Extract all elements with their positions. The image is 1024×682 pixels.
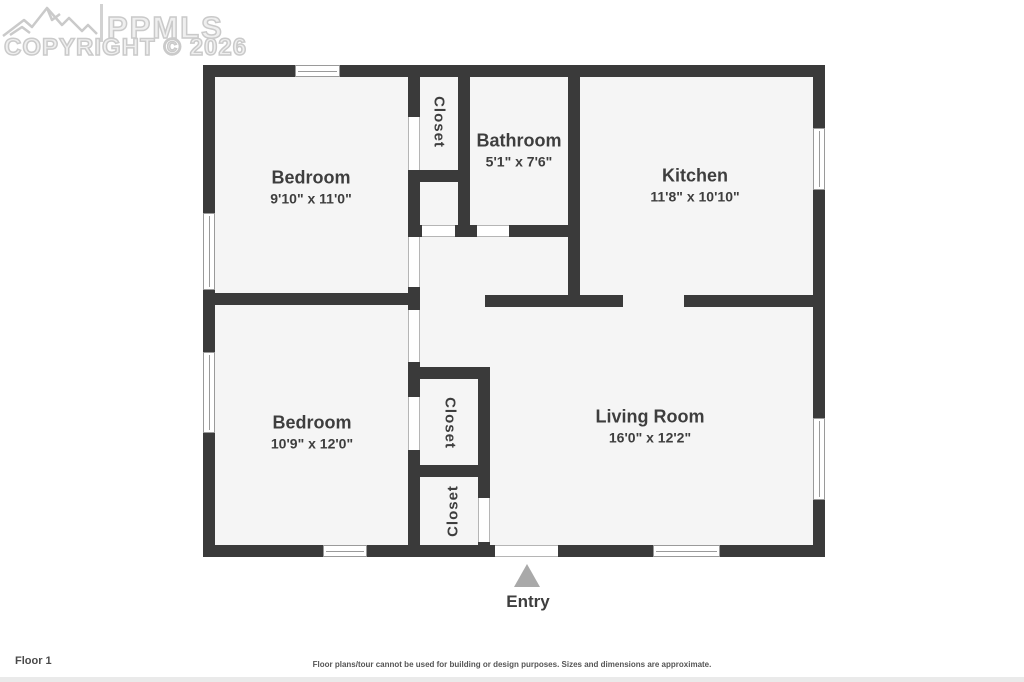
label-bathroom: Bathroom 5'1" x 7'6" <box>477 130 562 169</box>
label-bedroom-1: Bedroom 9'10" x 11'0" <box>270 167 351 206</box>
bottom-edge-strip <box>0 677 1024 682</box>
window-bedroom2-bottom <box>323 545 367 557</box>
door-hall-nook <box>422 225 455 237</box>
room-dimensions: 16'0" x 12'2" <box>596 429 705 446</box>
room-dimensions: 9'10" x 11'0" <box>270 190 351 207</box>
label-closet-middle: Closet <box>442 397 459 449</box>
room-name: Kitchen <box>650 165 739 186</box>
door-bedroom1 <box>408 237 420 287</box>
window-bedroom1-left <box>203 213 215 290</box>
wall-bedroom1-east-upper <box>408 77 420 117</box>
door-closet-top <box>408 117 420 170</box>
room-name: Bedroom <box>271 412 353 433</box>
room-dimensions: 10'9" x 12'0" <box>271 435 353 452</box>
door-entry-opening <box>495 545 558 557</box>
wall-bedrooms-divider <box>203 293 420 305</box>
entry-label: Entry <box>506 592 549 612</box>
label-bedroom-2: Bedroom 10'9" x 12'0" <box>271 412 353 451</box>
room-dimensions: 5'1" x 7'6" <box>477 153 562 170</box>
room-name: Bedroom <box>270 167 351 188</box>
room-dimensions: 11'8" x 10'10" <box>650 188 739 205</box>
label-living-room: Living Room 16'0" x 12'2" <box>596 406 705 445</box>
wall-kitchen-south-east-segment <box>684 295 813 307</box>
wall-bathroom-west <box>458 77 470 237</box>
wall-bedroom1-east-mid <box>408 170 420 237</box>
wall-outer-left <box>203 65 215 557</box>
window-bedroom2-left <box>203 352 215 433</box>
watermark-copyright: COPYRIGHT © 2026 <box>4 34 247 62</box>
door-closet-middle <box>408 397 420 450</box>
label-closet-bottom: Closet <box>445 485 462 537</box>
wall-bedroom2-east-lower <box>408 362 420 545</box>
window-kitchen-right <box>813 128 825 190</box>
floor-plan-page: { "watermark": { "brand": "PPMLS", "copy… <box>0 0 1024 682</box>
room-name: Living Room <box>596 406 705 427</box>
floor-plan: Bedroom 9'10" x 11'0" Bathroom 5'1" x 7'… <box>0 0 1024 682</box>
room-name: Bathroom <box>477 130 562 151</box>
door-closet-bottom <box>478 498 490 542</box>
entry-arrow-icon <box>514 564 540 587</box>
wall-bathroom-east <box>568 77 580 307</box>
wall-kitchen-south-west-segment <box>485 295 623 307</box>
disclaimer-text: Floor plans/tour cannot be used for buil… <box>0 660 1024 669</box>
label-closet-top: Closet <box>431 96 448 148</box>
door-bedroom2 <box>408 310 420 362</box>
wall-closet-block-divider <box>408 465 490 477</box>
window-livingroom-bottom <box>653 545 720 557</box>
label-kitchen: Kitchen 11'8" x 10'10" <box>650 165 739 204</box>
watermark: PPMLS COPYRIGHT © 2026 <box>0 0 104 51</box>
wall-bedroom2-east-upper <box>408 293 420 310</box>
window-livingroom-right <box>813 418 825 500</box>
door-bathroom <box>477 225 509 237</box>
window-bedroom1-top <box>295 65 340 77</box>
